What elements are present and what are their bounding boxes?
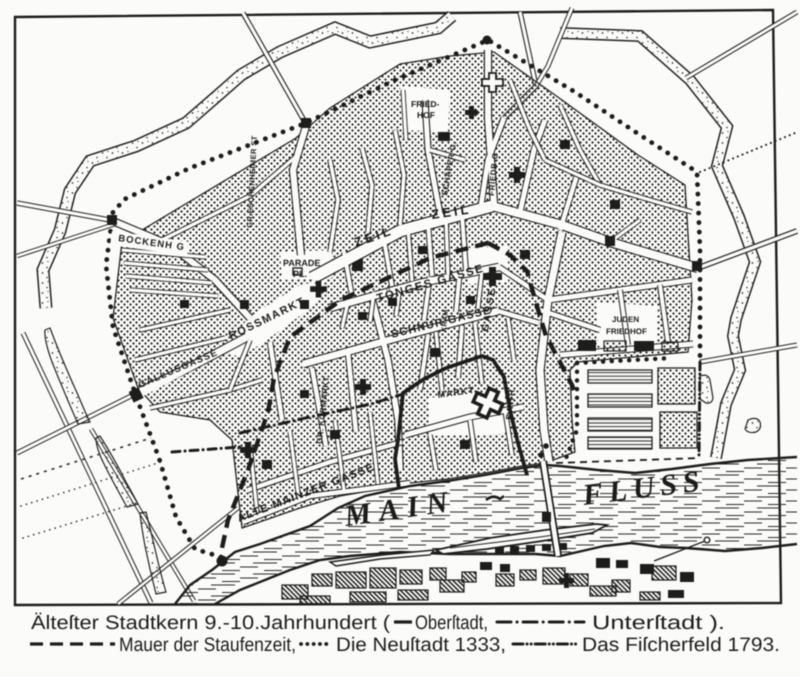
svg-text:FRIEDHOF: FRIEDHOF — [606, 327, 647, 336]
svg-text:Die Neuſtadt 1333,: Die Neuſtadt 1333, — [336, 634, 506, 656]
svg-text:JUDEN: JUDEN — [612, 315, 639, 324]
svg-text:Oberſtadt,: Oberſtadt, — [415, 612, 488, 634]
svg-text:PARADE: PARADE — [283, 258, 320, 268]
svg-text:Mauer der Staufenzeit,: Mauer der Staufenzeit, — [119, 634, 296, 656]
svg-text:FRIED-: FRIED- — [411, 99, 440, 109]
svg-text:HOF: HOF — [417, 110, 435, 120]
svg-text:PL.: PL. — [293, 269, 307, 279]
svg-text:Älteſter Stadtkern 9.-10.Jahrh: Älteſter Stadtkern 9.-10.Jahrhundert ( — [31, 612, 391, 634]
svg-text:Unterſtadt ).: Unterſtadt ). — [592, 612, 725, 634]
svg-text:Das Fiſcherfeld 1793.: Das Fiſcherfeld 1793. — [582, 634, 780, 656]
